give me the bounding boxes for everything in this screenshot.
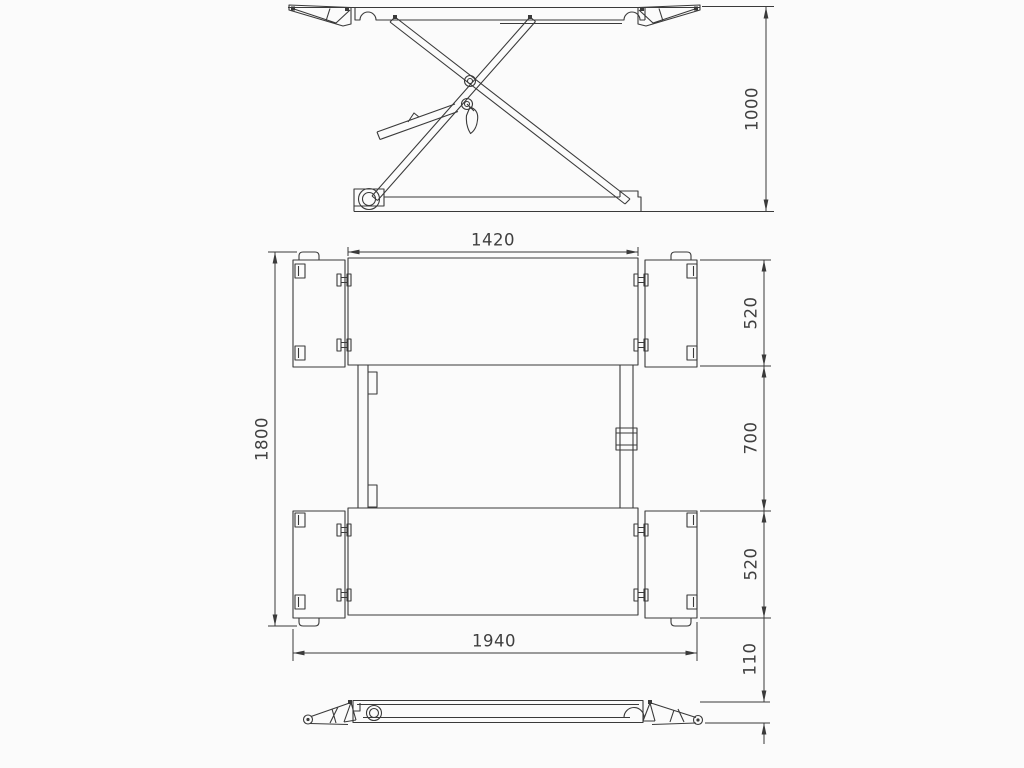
plan-view	[268, 247, 771, 661]
scissor-arm-rear	[372, 17, 536, 201]
technical-drawing-canvas: 1000 1420 1800 520 700 520 1940 110	[0, 0, 1024, 768]
dim-label-center-gap: 700	[742, 422, 761, 455]
ramps-plan	[293, 260, 697, 618]
hydraulic-cylinder	[377, 104, 458, 140]
dim-label-platform-side-top: 520	[742, 297, 761, 330]
dim-label-lowered-height: 110	[741, 643, 760, 676]
dim-label-platform-length: 1420	[471, 231, 515, 250]
ramp-lowered-left	[310, 703, 356, 725]
dim-lowered-height	[700, 618, 770, 744]
safety-latch	[466, 104, 477, 134]
line-work	[268, 5, 774, 744]
dim-label-raised-height: 1000	[743, 87, 762, 131]
connecting-rails	[358, 365, 633, 508]
ramp-folded-right	[638, 5, 700, 26]
scissor-arm-front	[390, 17, 630, 204]
scissor-lift-three-view-drawing: 1000 1420 1800 520 700 520 1940 110	[0, 0, 1024, 768]
dim-label-overall-width: 1800	[253, 417, 272, 461]
dim-raised-height	[702, 7, 774, 212]
side-view-lowered	[304, 618, 771, 744]
extension-line	[700, 702, 770, 723]
ramp-tip-axle-dots	[306, 718, 699, 722]
hinge-pin-squares	[291, 7, 698, 705]
side-view-raised	[288, 5, 774, 212]
platform-bottom	[348, 508, 638, 615]
dim-label-platform-side-bottom: 520	[742, 548, 761, 581]
dimension-labels: 1000 1420 1800 520 700 520 1940 110	[253, 87, 762, 676]
wheel-stop	[624, 708, 644, 718]
deck-profile	[353, 701, 643, 723]
base-frame	[354, 189, 774, 212]
platform-clips	[337, 274, 648, 601]
ramp-lowered-right	[643, 703, 696, 725]
dim-label-overall-length: 1940	[472, 632, 516, 651]
rail-coupler	[616, 428, 637, 450]
ramp-folded-left	[289, 5, 351, 26]
platform-top	[348, 258, 638, 365]
